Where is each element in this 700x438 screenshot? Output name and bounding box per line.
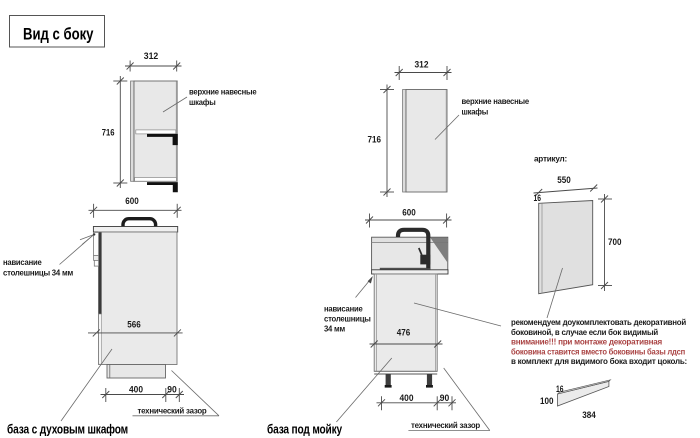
- svg-text:внимание!!! при монтаже декора: внимание!!! при монтаже декоративная: [511, 337, 662, 347]
- svg-text:боковиной, в случае если бок в: боковиной, в случае если бок видимый: [511, 327, 658, 337]
- svg-text:100: 100: [540, 396, 554, 406]
- svg-text:312: 312: [415, 60, 429, 70]
- svg-text:база с духовым шкафом: база с духовым шкафом: [7, 423, 128, 437]
- svg-text:90: 90: [167, 385, 177, 395]
- svg-text:566: 566: [127, 320, 141, 330]
- svg-text:550: 550: [557, 175, 571, 185]
- svg-text:384: 384: [582, 410, 596, 420]
- svg-text:400: 400: [129, 385, 143, 395]
- svg-text:600: 600: [125, 196, 139, 206]
- svg-text:700: 700: [608, 237, 622, 247]
- svg-text:476: 476: [397, 328, 411, 338]
- svg-text:в комплект для видимого бока в: в комплект для видимого бока входит цоко…: [511, 356, 687, 366]
- svg-text:артикул:: артикул:: [534, 154, 567, 164]
- svg-text:боковина ставится вместо боков: боковина ставится вместо боковины базы л…: [511, 346, 685, 356]
- svg-text:база под мойку: база под мойку: [267, 423, 342, 437]
- svg-text:716: 716: [102, 128, 115, 138]
- svg-text:нависание: нависание: [324, 304, 363, 314]
- svg-text:600: 600: [402, 208, 416, 218]
- svg-text:90: 90: [440, 393, 450, 403]
- svg-text:верхние навесные: верхние навесные: [462, 96, 530, 106]
- svg-text:технический зазор: технический зазор: [138, 406, 207, 416]
- svg-text:нависание: нависание: [3, 257, 42, 267]
- svg-text:16: 16: [556, 384, 564, 394]
- svg-text:312: 312: [144, 51, 159, 61]
- svg-text:400: 400: [400, 393, 414, 403]
- svg-text:рекомендуем доукомплектовать д: рекомендуем доукомплектовать декоративно…: [511, 317, 686, 327]
- svg-text:столешницы: столешницы: [324, 314, 371, 324]
- svg-text:шкафы: шкафы: [462, 107, 489, 117]
- svg-text:34 мм: 34 мм: [324, 324, 345, 334]
- svg-text:Вид с боку: Вид с боку: [23, 26, 94, 44]
- svg-text:716: 716: [368, 135, 382, 145]
- svg-text:столешницы 34 мм: столешницы 34 мм: [3, 268, 73, 278]
- svg-text:верхние навесные: верхние навесные: [189, 87, 257, 97]
- svg-text:технический зазор: технический зазор: [411, 420, 480, 430]
- svg-text:шкафы: шкафы: [189, 97, 216, 107]
- svg-text:16: 16: [534, 193, 542, 203]
